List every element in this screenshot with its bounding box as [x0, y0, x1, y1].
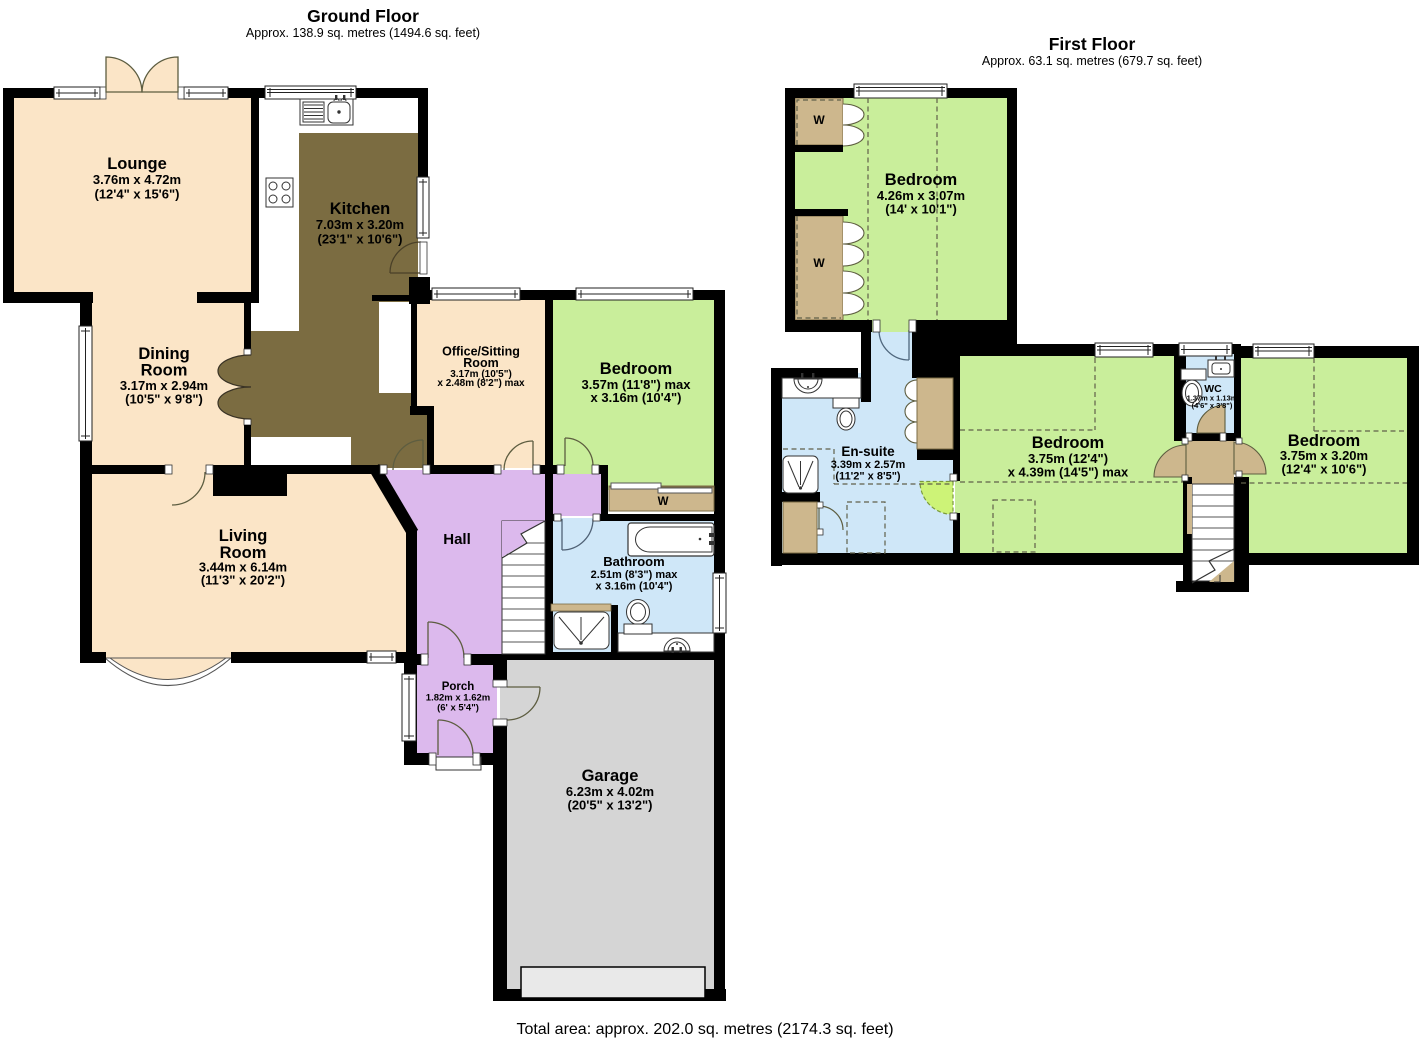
svg-text:Porch: Porch [442, 681, 475, 693]
svg-text:Room: Room [141, 362, 188, 380]
svg-text:(6' x 5'4"): (6' x 5'4") [437, 703, 479, 714]
svg-text:x 3.16m (10'4"): x 3.16m (10'4") [596, 581, 673, 593]
svg-text:(12'4" x 15'6"): (12'4" x 15'6") [94, 187, 179, 202]
svg-text:x 2.48m (8'2") max: x 2.48m (8'2") max [437, 378, 525, 389]
svg-text:En-suite: En-suite [841, 444, 895, 459]
svg-text:(11'3" x 20'2"): (11'3" x 20'2") [201, 573, 285, 588]
svg-text:2.51m (8'3") max: 2.51m (8'3") max [591, 569, 679, 581]
svg-text:x 4.39m (14'5") max: x 4.39m (14'5") max [1008, 465, 1129, 480]
svg-text:3.76m x 4.72m: 3.76m x 4.72m [93, 172, 181, 187]
svg-text:3.39m x 2.57m: 3.39m x 2.57m [831, 459, 906, 471]
svg-text:(23'1" x 10'6"): (23'1" x 10'6") [317, 232, 402, 247]
svg-text:Bathroom: Bathroom [603, 554, 664, 569]
svg-text:Garage: Garage [582, 767, 639, 785]
svg-text:(10'5" x 9'8"): (10'5" x 9'8") [125, 392, 203, 407]
svg-text:W: W [658, 496, 669, 508]
svg-text:Approx. 63.1 sq. metres (679.7: Approx. 63.1 sq. metres (679.7 sq. feet) [982, 54, 1202, 68]
svg-text:(4'6" x 3'8"): (4'6" x 3'8") [1192, 401, 1233, 410]
svg-text:Kitchen: Kitchen [330, 200, 391, 218]
svg-text:(11'2" x 8'5"): (11'2" x 8'5") [835, 471, 901, 483]
svg-text:Bedroom: Bedroom [885, 171, 957, 189]
svg-text:7.03m x 3.20m: 7.03m x 3.20m [316, 217, 404, 232]
svg-text:Total area: approx. 202.0 sq.: Total area: approx. 202.0 sq. metres (21… [516, 1021, 893, 1038]
svg-text:Hall: Hall [443, 531, 471, 548]
svg-text:W: W [813, 256, 825, 270]
svg-text:(20'5" x 13'2"): (20'5" x 13'2") [567, 798, 652, 813]
svg-text:Approx. 138.9 sq. metres (1494: Approx. 138.9 sq. metres (1494.6 sq. fee… [246, 26, 480, 40]
svg-text:(12'4" x 10'6"): (12'4" x 10'6") [1281, 462, 1366, 477]
svg-text:Living: Living [219, 527, 268, 545]
svg-text:Bedroom: Bedroom [1032, 434, 1104, 452]
svg-text:(14' x 10'1"): (14' x 10'1") [885, 202, 957, 217]
svg-text:W: W [813, 113, 825, 127]
svg-text:Room: Room [463, 356, 498, 370]
svg-text:Dining: Dining [138, 345, 189, 363]
svg-text:Ground Floor: Ground Floor [307, 6, 419, 26]
svg-text:First Floor: First Floor [1049, 34, 1136, 54]
svg-text:Lounge: Lounge [107, 155, 167, 173]
svg-text:x 3.16m (10'4"): x 3.16m (10'4") [591, 390, 682, 405]
svg-text:Bedroom: Bedroom [600, 360, 672, 378]
